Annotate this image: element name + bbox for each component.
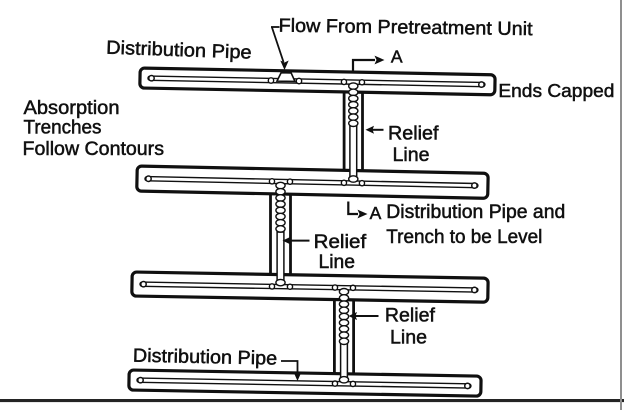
svg-text:Trenches: Trenches (24, 118, 102, 139)
svg-text:Line: Line (390, 327, 427, 348)
svg-text:Line: Line (319, 252, 356, 273)
svg-text:Line: Line (393, 145, 430, 166)
svg-text:Flow From Pretreatment Unit: Flow From Pretreatment Unit (278, 16, 533, 41)
svg-text:Follow Contours: Follow Contours (23, 139, 165, 160)
svg-text:Relief: Relief (314, 232, 367, 253)
svg-text:A: A (370, 203, 382, 223)
svg-text:Relief: Relief (385, 306, 436, 327)
svg-text:Ends Capped: Ends Capped (498, 80, 614, 101)
svg-text:Distribution Pipe and: Distribution Pipe and (386, 202, 565, 223)
svg-text:Relief: Relief (388, 123, 439, 144)
svg-text:A: A (391, 47, 403, 67)
svg-text:Distribution Pipe: Distribution Pipe (133, 346, 278, 370)
svg-text:Absorption: Absorption (24, 98, 120, 119)
svg-text:Trench to be Level: Trench to be Level (386, 227, 542, 248)
